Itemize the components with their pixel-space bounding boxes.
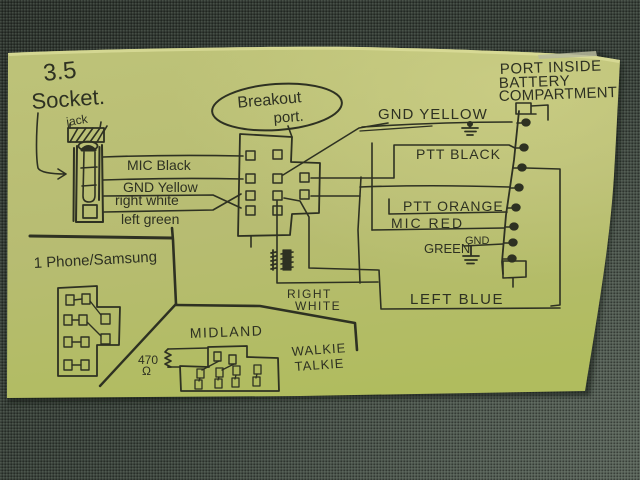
svg-text:MIC RED: MIC RED [391,215,464,231]
svg-text:left green: left green [121,211,179,227]
svg-text:WHITE: WHITE [295,299,341,313]
svg-text:PTT BLACK: PTT BLACK [416,146,501,162]
svg-text:3.5: 3.5 [42,57,78,87]
svg-text:LEFT BLUE: LEFT BLUE [410,291,504,308]
svg-text:GREEN: GREEN [424,241,470,256]
svg-text:MIDLAND: MIDLAND [190,322,264,341]
svg-text:right white: right white [115,192,179,208]
svg-text:MIC Black: MIC Black [127,157,192,173]
svg-text:Socket.: Socket. [31,84,106,114]
svg-text:GND YELLOW: GND YELLOW [378,106,488,123]
svg-text:PTT ORANGE: PTT ORANGE [403,198,504,214]
svg-text:port.: port. [273,108,304,127]
svg-text:Ω: Ω [142,364,151,378]
